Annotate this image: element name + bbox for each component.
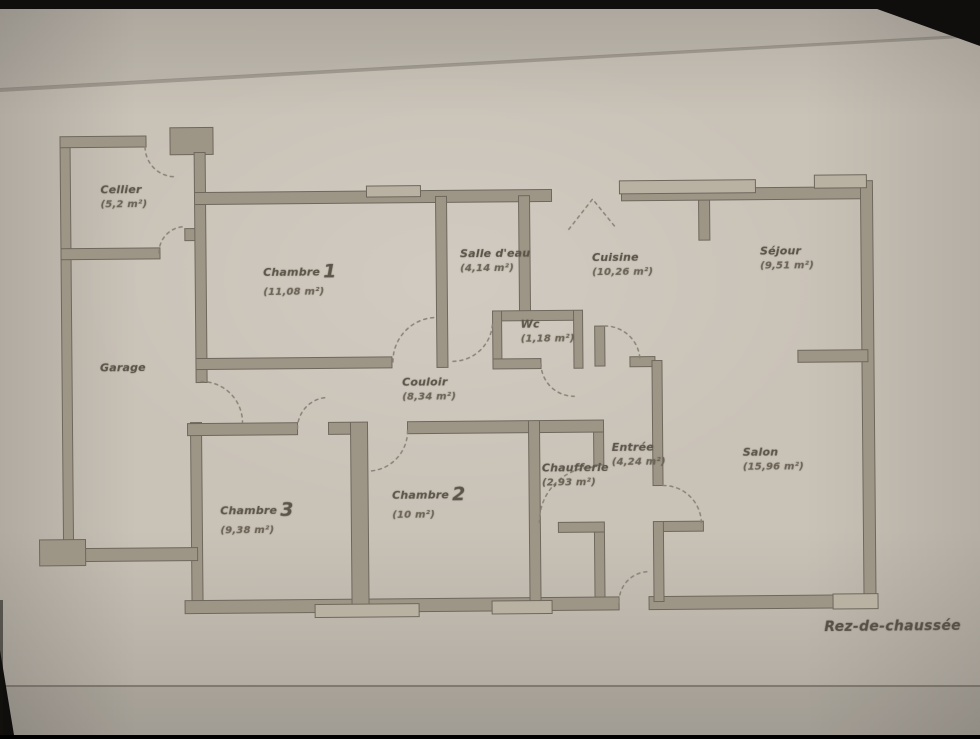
floor-plan-photo: Cellier (5,2 m²) Garage Chambre1 (11,08 …	[0, 0, 980, 735]
room-label-chambre-3: Chambre3 (9,38 m²)	[220, 498, 294, 538]
room-label-chaufferie: Chaufferie (2,93 m²)	[542, 461, 609, 490]
room-label-sejour: Séjour (9,51 m²)	[760, 244, 814, 273]
room-label-cellier: Cellier (5,2 m²)	[100, 183, 147, 212]
room-label-couloir: Couloir (8,34 m²)	[402, 375, 456, 404]
paper-bottom-edge	[0, 685, 980, 687]
room-label-salle-d-eau: Salle d'eau (4,14 m²)	[460, 247, 531, 276]
room-label-wc: Wc (1,18 m²)	[521, 317, 575, 346]
photo-edge-left	[0, 600, 3, 735]
room-label-entree: Entrée (4,24 m²)	[612, 440, 666, 469]
floor-plan: Cellier (5,2 m²) Garage Chambre1 (11,08 …	[0, 0, 980, 739]
floor-caption: Rez-de-chaussée	[824, 618, 961, 635]
walls-group	[36, 122, 876, 616]
room-label-garage: Garage	[100, 361, 146, 376]
paper-bottom-shade	[0, 687, 980, 735]
room-label-salon: Salon (15,96 m²)	[743, 445, 804, 474]
room-label-cuisine: Cuisine (10,26 m²)	[592, 251, 653, 280]
photo-edge-top	[0, 0, 980, 9]
room-label-chambre-2: Chambre2 (10 m²)	[392, 482, 466, 522]
room-label-chambre-1: Chambre1 (11,08 m²)	[263, 259, 337, 299]
